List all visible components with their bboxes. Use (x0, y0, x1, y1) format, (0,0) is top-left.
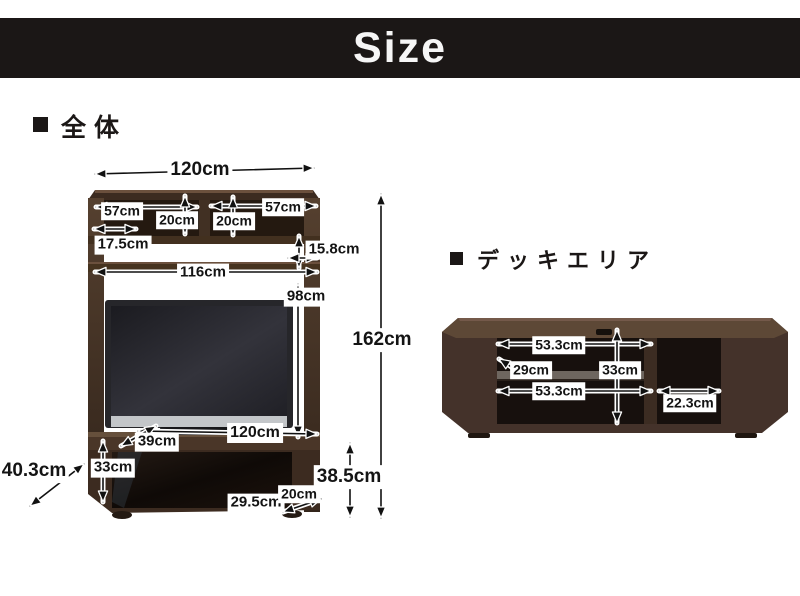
dim-label-side-gap: 15.8cm (306, 241, 363, 260)
deck-foot (468, 433, 490, 438)
dim-label-shelf-left-width: 57cm (101, 202, 143, 220)
dim-label-base-inner-width: 29.5cm (228, 494, 285, 513)
television (105, 300, 293, 435)
section-title-overall: 全体 (61, 108, 127, 144)
dim-label-deck-top-width: 53.3cm (532, 336, 585, 354)
dim-label-inner-width: 116cm (177, 264, 229, 283)
dim-label-shelf-right-height: 20cm (213, 212, 255, 230)
dim-label-top-depth: 17.5cm (95, 236, 152, 255)
dim-label-base-height: 38.5cm (314, 465, 384, 489)
section-title-deck: デッキエリア (477, 243, 657, 275)
dim-label-deck-right-width: 22.3cm (663, 394, 716, 412)
deck-divider (644, 338, 657, 424)
dim-label-diagonal-depth: 40.3cm (0, 459, 69, 483)
dim-label-door-height: 33cm (91, 459, 135, 478)
deck-foot (735, 433, 757, 438)
dim-label-deck-inner-height: 33cm (599, 361, 641, 379)
upper-shelf-divider (199, 200, 210, 236)
dim-label-shelf-left-height: 20cm (156, 211, 198, 229)
tall-unit-foot (112, 511, 132, 519)
diagram-canvas (0, 0, 800, 596)
section-bullet-icon (450, 252, 463, 265)
deck-cable-notch (596, 329, 612, 335)
dim-label-shelf-depth: 39cm (135, 433, 179, 452)
size-diagram-page: Size 全体 デッキエリア (0, 0, 800, 596)
tv-screen (111, 306, 287, 416)
dim-label-deck-shelf-depth: 29cm (510, 361, 552, 379)
page-title: Size (0, 18, 800, 78)
dim-label-shelf-right-width: 57cm (262, 198, 304, 216)
section-bullet-icon (33, 117, 48, 132)
dim-label-deck-bottom-width: 53.3cm (532, 382, 585, 400)
dim-label-mid-width: 120cm (227, 423, 283, 443)
dim-label-tv-space-height: 98cm (284, 288, 328, 307)
dim-label-total-height: 162cm (349, 328, 414, 352)
dim-label-top-width: 120cm (167, 158, 232, 182)
